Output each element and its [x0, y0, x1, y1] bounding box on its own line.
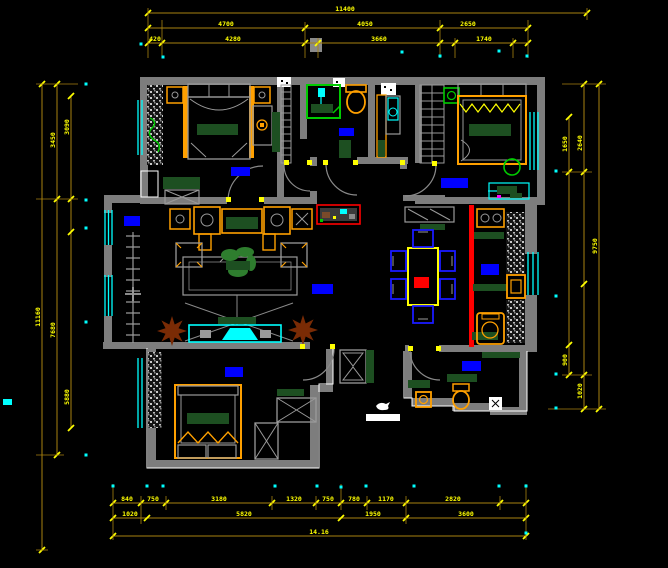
dimension-label: 780 — [348, 495, 360, 503]
axis-dot — [526, 55, 529, 58]
cabinet-shelf — [378, 140, 385, 157]
counter-hatch-icon — [506, 212, 525, 274]
tv-shelf-icon — [218, 317, 256, 324]
axis-dot — [525, 485, 528, 488]
wall-kitchen-right-b — [525, 295, 537, 352]
wardrobe-cells — [420, 85, 444, 163]
dimension-label: 3450 — [49, 132, 57, 148]
axis-dot — [401, 51, 404, 54]
pillow-icon — [197, 124, 238, 135]
planter — [226, 261, 250, 270]
wardrobe-hatch-icon — [147, 85, 163, 165]
axis-dot — [316, 485, 319, 488]
ottoman-icon — [263, 234, 275, 250]
door-arc-bed2 — [405, 165, 436, 196]
door-threshold-icon — [366, 414, 400, 421]
vent-dot — [390, 89, 392, 91]
pillow-icon — [187, 413, 229, 424]
wall-bath2-right — [519, 352, 527, 410]
vent-shaft-icon — [381, 83, 396, 95]
armchair-icon — [194, 207, 220, 234]
dimension-label: 11400 — [335, 5, 355, 13]
wall-bath2-bottom-b — [452, 403, 492, 411]
dimension-label: 3180 — [211, 495, 227, 503]
dimension-label: 750 — [147, 495, 159, 503]
window-bed2-icon — [530, 112, 538, 170]
bathroom-2-label-block — [462, 361, 481, 371]
bench-icon — [163, 177, 200, 189]
wall-bed2-bottom — [415, 197, 537, 204]
stool-seat — [448, 92, 456, 100]
wall-living-bottom — [103, 342, 310, 349]
dining-chair-icon — [440, 279, 455, 299]
axis-marker — [3, 399, 12, 405]
wall-bed3-bottom — [148, 460, 318, 468]
dining-chair-icon — [440, 251, 455, 271]
console-dot — [333, 216, 336, 219]
dresser-knob — [260, 123, 264, 127]
burner-icon — [481, 214, 489, 222]
dimension-label: 420 — [149, 35, 161, 43]
console-decor — [322, 212, 330, 218]
axis-dot — [439, 55, 442, 58]
wall-bath1-right — [368, 84, 375, 159]
shower-door-line — [333, 106, 340, 113]
wall-kitchen-right-a — [525, 204, 537, 254]
dimension-label: 1650 — [561, 136, 569, 152]
dimension-label: 1020 — [122, 510, 138, 518]
nightstand-icon — [254, 87, 270, 103]
vent-dot — [384, 86, 386, 88]
shelf-icon — [277, 389, 304, 396]
dining-table-icon — [408, 248, 438, 305]
bedroom-1 — [141, 84, 291, 204]
hinge-icon — [307, 160, 312, 165]
door-arc-bath1 — [326, 164, 357, 195]
cabinet-back — [366, 350, 374, 383]
headboard-icon — [458, 84, 526, 96]
axis-dot — [498, 50, 501, 53]
hinge-icon — [400, 160, 405, 165]
sideboard-icon — [405, 207, 454, 222]
wardrobe-x — [255, 423, 278, 459]
axis-dot — [555, 170, 558, 173]
dimension-label: 1320 — [286, 495, 302, 503]
dining-chair-icon — [413, 306, 433, 323]
axis-dot — [162, 56, 165, 59]
dining-room — [391, 230, 455, 323]
hinge-icon — [432, 161, 437, 166]
hinge-icon — [436, 346, 441, 351]
console-decor-gray — [349, 214, 355, 219]
wall-bed2-left — [415, 84, 422, 163]
kitchen — [469, 205, 525, 347]
bed-rail-icon — [183, 86, 188, 158]
living-room-left-label-block — [124, 216, 140, 226]
axis-dot — [140, 43, 143, 46]
dimension-label: 840 — [121, 495, 133, 503]
dimension-label: 1740 — [476, 35, 492, 43]
door-arc-closet — [284, 165, 310, 191]
wall-bath1-left — [300, 84, 307, 139]
dimension-label: 3600 — [458, 510, 474, 518]
side-table-icon — [170, 209, 190, 229]
toilet-icon — [347, 91, 365, 113]
dimension-label: 9750 — [591, 238, 599, 254]
stool-icon — [444, 88, 459, 103]
shower-shelf-icon — [311, 104, 333, 113]
speaker-icon — [200, 330, 211, 338]
axis-dot — [555, 373, 558, 376]
axis-dot — [112, 485, 115, 488]
duvet-folds — [191, 143, 247, 157]
cabinet-green-icon — [272, 112, 280, 152]
axis-dot — [85, 199, 88, 202]
shower-head-icon — [318, 88, 325, 97]
duvet-line — [461, 140, 470, 161]
kitchen-label-block — [481, 264, 499, 275]
desk-item — [497, 186, 517, 194]
bed-drawer-icon — [208, 445, 236, 458]
dimension-label: 14.16 — [309, 528, 329, 536]
table-lamp-icon — [176, 215, 184, 223]
dimension-label: 2640 — [576, 135, 584, 151]
axis-dot — [340, 486, 343, 489]
window-kitchen-icon — [528, 252, 538, 295]
bath-mat-icon — [339, 140, 351, 158]
sideboard-diagonals — [408, 209, 450, 220]
bedroom-2 — [420, 84, 529, 199]
speaker-icon — [260, 330, 271, 338]
bathroom-1 — [307, 85, 400, 158]
axis-dot — [555, 295, 558, 298]
living-room — [126, 207, 318, 346]
console-decor-cyan — [340, 209, 347, 214]
cad-canvas: 1140047004050265042042803660174084075031… — [0, 0, 668, 568]
washer-door-icon — [388, 98, 398, 120]
axis-dot — [146, 485, 149, 488]
hinge-icon — [226, 197, 231, 202]
dimension-label: 5820 — [236, 510, 252, 518]
counter-hatch-icon — [506, 300, 525, 343]
washer-panel — [482, 314, 499, 319]
armchair-icon — [264, 207, 290, 234]
desk-item — [510, 193, 522, 198]
dimension-label: 1950 — [365, 510, 381, 518]
shelf-icon — [482, 352, 520, 358]
pillow-icon — [469, 124, 511, 136]
axis-dot — [85, 454, 88, 457]
hinge-icon — [259, 197, 264, 202]
axis-dot — [162, 485, 165, 488]
dimension-label: 750 — [322, 495, 334, 503]
axis-dot — [274, 485, 277, 488]
dimension-label: 1020 — [576, 383, 584, 399]
hinge-icon — [323, 160, 328, 165]
dimension-label: 4700 — [218, 20, 234, 28]
dimension-label: 3090 — [63, 119, 71, 135]
window-bed3-icon — [138, 358, 142, 428]
bathroom-1-label-block — [339, 128, 354, 136]
vent-dot — [286, 82, 288, 84]
axis-dot — [85, 321, 88, 324]
dining-chair-icon — [413, 230, 433, 247]
vent-dot — [336, 81, 338, 83]
dimension-label: 7680 — [49, 322, 57, 338]
counter-icon — [473, 284, 507, 291]
axis-dot — [413, 485, 416, 488]
headboard-icon — [178, 386, 238, 395]
axis-dot — [498, 485, 501, 488]
window-living-b-icon — [105, 275, 112, 316]
axis-dot — [85, 227, 88, 230]
canopy-zigzag-icon — [178, 432, 238, 443]
door-arc-bath2 — [410, 350, 440, 380]
table-center-marker — [414, 277, 429, 288]
hinge-icon — [330, 344, 335, 349]
cabinet-triangle — [343, 367, 363, 380]
axis-dot — [365, 485, 368, 488]
wall-living-left-b — [104, 245, 112, 277]
canopy-zigzag-icon — [460, 104, 520, 112]
nightstand-icon — [167, 87, 183, 103]
door-opening — [227, 196, 264, 205]
headboard-icon — [188, 84, 250, 97]
entry-symbol-icon — [376, 402, 390, 410]
dimension-label: 5880 — [63, 389, 71, 405]
radiator-icon — [126, 232, 140, 343]
sink-icon — [507, 275, 525, 298]
sliding-door-track-icon — [469, 205, 474, 347]
burner-icon — [493, 214, 501, 222]
hinge-icon — [284, 160, 289, 165]
duvet-line — [190, 99, 248, 110]
axis-dot — [555, 407, 558, 410]
hinge-icon — [300, 344, 305, 349]
dimension-label: 11160 — [34, 307, 42, 327]
dimension-label: 4280 — [225, 35, 241, 43]
vent-dot — [281, 80, 283, 82]
console-dot — [320, 219, 323, 222]
dimension-label: 900 — [561, 354, 569, 366]
headboard-panels — [481, 84, 503, 96]
vanity-counter-icon — [408, 380, 430, 388]
entry — [340, 350, 400, 421]
axis-dot — [85, 83, 88, 86]
hinge-icon — [408, 346, 413, 351]
table-fan-icon — [296, 213, 308, 225]
headboard-panels — [209, 84, 229, 97]
dimension-label: 3660 — [371, 35, 387, 43]
counter-icon — [474, 232, 504, 239]
hinge-icon — [353, 160, 358, 165]
magenta-marker — [497, 195, 501, 198]
dimension-label: 2650 — [460, 20, 476, 28]
potted-plant-icon — [157, 316, 187, 346]
ottoman-icon — [199, 234, 211, 250]
sink-basin — [511, 280, 521, 293]
armchair-cushion — [201, 214, 213, 226]
dimension-label: 1170 — [378, 495, 394, 503]
tv-icon — [222, 328, 258, 340]
sofa-cushion-icon — [226, 217, 258, 229]
bedroom-2-label-block — [441, 178, 468, 188]
dimension-label: 4050 — [357, 20, 373, 28]
bed-drawer-icon — [178, 445, 206, 458]
cushion-corners — [281, 243, 307, 267]
bedroom-3-label-block — [225, 367, 243, 377]
toilet-tank-icon — [453, 384, 469, 391]
door-opening — [409, 344, 439, 352]
wall-bath2-bottom-a — [412, 398, 454, 406]
dimension-label: 2820 — [445, 495, 461, 503]
cabinet-triangle — [343, 353, 363, 366]
dimension-annotations: 1140047004050265042042803660174084075031… — [34, 5, 606, 553]
bedroom-1-label-block — [231, 167, 250, 176]
lamp-icon — [172, 92, 178, 98]
floor-plan-drawing: 1140047004050265042042803660174084075031… — [0, 0, 668, 568]
lamp-icon — [259, 92, 265, 98]
armchair-cushion — [271, 214, 283, 226]
door-opening — [309, 166, 318, 191]
washer-drum-icon — [389, 108, 397, 116]
potted-plant-icon — [288, 315, 318, 345]
window-living-a-icon — [105, 210, 112, 245]
counter-icon — [447, 374, 477, 382]
axis-dot — [525, 532, 528, 535]
living-room-center-label-block — [312, 284, 333, 294]
wardrobe-hatch-icon — [148, 352, 162, 428]
